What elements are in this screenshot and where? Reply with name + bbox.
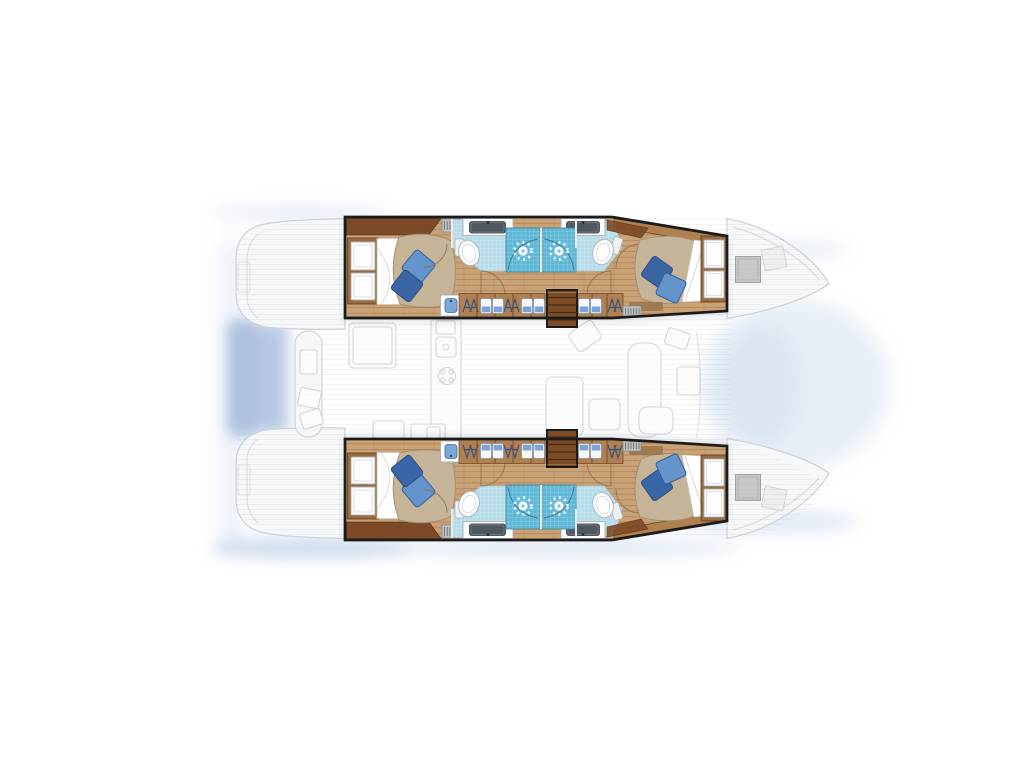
port-hull-interior — [345, 217, 727, 327]
floor-plan-canvas — [0, 0, 1024, 768]
catamaran-floor-plan — [0, 0, 1024, 768]
starboard-hull-interior — [345, 430, 727, 540]
cockpit-table — [349, 323, 396, 368]
dining-table — [546, 377, 583, 436]
